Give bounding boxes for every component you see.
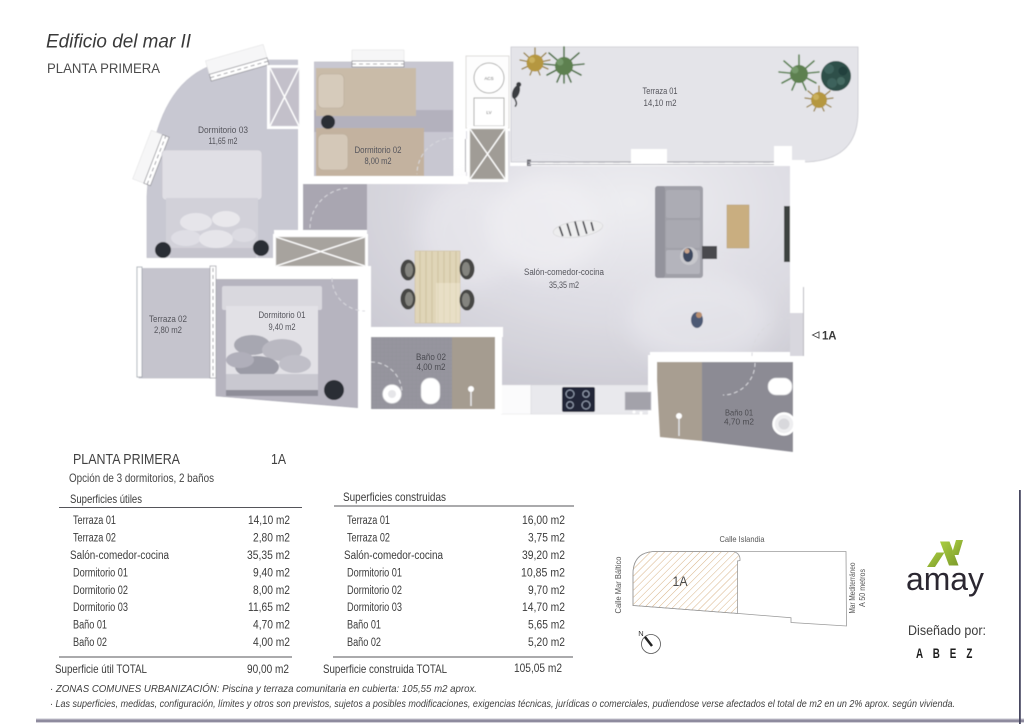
svg-text:PLANTA PRIMERA: PLANTA PRIMERA <box>47 61 160 76</box>
svg-text:PLANTA PRIMERA: PLANTA PRIMERA <box>73 452 180 468</box>
svg-text:Terraza 01: Terraza 01 <box>347 515 390 527</box>
svg-text:Dormitorio 02: Dormitorio 02 <box>355 145 402 155</box>
svg-text:9,40 m2: 9,40 m2 <box>253 568 290 580</box>
svg-text:Terraza 02: Terraza 02 <box>347 533 390 545</box>
svg-text:90,00 m2: 90,00 m2 <box>247 662 289 676</box>
svg-text:Dormitorio 02: Dormitorio 02 <box>73 585 128 597</box>
svg-text:11,65 m2: 11,65 m2 <box>209 136 238 146</box>
svg-text:Superficies útiles: Superficies útiles <box>70 492 142 506</box>
svg-text:Baño 02: Baño 02 <box>347 637 381 649</box>
svg-text:Baño 02: Baño 02 <box>416 352 446 362</box>
svg-text:Terraza 02: Terraza 02 <box>149 314 187 324</box>
svg-text:1A: 1A <box>822 329 837 343</box>
svg-text:Mar Mediterráneo: Mar Mediterráneo <box>848 562 857 613</box>
svg-text:4,00 m2: 4,00 m2 <box>253 637 290 649</box>
svg-text:Dormitorio 03: Dormitorio 03 <box>198 125 248 135</box>
svg-text:9,40 m2: 9,40 m2 <box>269 322 296 332</box>
svg-text:8,00 m2: 8,00 m2 <box>253 585 290 597</box>
svg-text:Dormitorio 01: Dormitorio 01 <box>347 568 402 580</box>
svg-text:5,65 m2: 5,65 m2 <box>528 620 565 632</box>
svg-text:14,10 m2: 14,10 m2 <box>644 98 677 108</box>
svg-text:ACS: ACS <box>484 76 493 81</box>
svg-text:Baño 02: Baño 02 <box>73 637 107 649</box>
svg-text:14,70 m2: 14,70 m2 <box>522 602 565 614</box>
svg-text:A 50 metros: A 50 metros <box>858 569 867 607</box>
svg-text:35,35 m2: 35,35 m2 <box>549 280 579 290</box>
svg-text:105,05 m2: 105,05 m2 <box>514 661 562 675</box>
svg-text:Edificio del mar II: Edificio del mar II <box>46 32 192 53</box>
svg-text:Superficies construidas: Superficies construidas <box>343 490 446 504</box>
svg-text:2,80 m2: 2,80 m2 <box>253 533 290 545</box>
svg-text:Dormitorio 02: Dormitorio 02 <box>347 585 402 597</box>
svg-text:amay: amay <box>906 561 985 597</box>
svg-text:14,10 m2: 14,10 m2 <box>248 515 290 527</box>
svg-text:Terraza 01: Terraza 01 <box>643 86 678 96</box>
svg-text:5,20 m2: 5,20 m2 <box>528 637 565 649</box>
svg-text:Calle Islandia: Calle Islandia <box>720 534 765 544</box>
svg-text:Salón-comedor-cocina: Salón-comedor-cocina <box>70 550 170 562</box>
svg-text:A B E Z: A B E Z <box>916 646 976 661</box>
svg-text:Baño 01: Baño 01 <box>73 620 107 632</box>
svg-text:1A: 1A <box>271 452 286 468</box>
svg-text:Dormitorio 01: Dormitorio 01 <box>73 568 128 580</box>
svg-text:LV: LV <box>486 110 491 115</box>
svg-text:4,00 m2: 4,00 m2 <box>417 362 446 372</box>
svg-text:11,65 m2: 11,65 m2 <box>248 602 290 614</box>
svg-text:8,00 m2: 8,00 m2 <box>365 156 392 166</box>
svg-text:· Las superficies, medidas, co: · Las superficies, medidas, configuració… <box>50 699 955 710</box>
svg-text:· ZONAS COMUNES URBANIZACIÓN:: · ZONAS COMUNES URBANIZACIÓN: Piscina y … <box>50 682 477 695</box>
svg-text:10,85 m2: 10,85 m2 <box>521 568 565 580</box>
svg-text:4,70 m2: 4,70 m2 <box>724 417 754 427</box>
svg-text:Salón-comedor-cocina: Salón-comedor-cocina <box>524 267 604 277</box>
svg-text:Superficie útil TOTAL: Superficie útil TOTAL <box>55 662 147 676</box>
svg-text:39,20 m2: 39,20 m2 <box>522 550 565 562</box>
svg-text:1A: 1A <box>673 574 688 589</box>
svg-text:Calle Mar Báltico: Calle Mar Báltico <box>614 556 623 614</box>
svg-text:Superficie construida TOTAL: Superficie construida TOTAL <box>323 662 447 676</box>
svg-text:Opción de 3 dormitorios, 2 bañ: Opción de 3 dormitorios, 2 baños <box>69 471 214 485</box>
svg-text:N: N <box>638 629 643 638</box>
svg-text:Dormitorio 01: Dormitorio 01 <box>259 310 306 320</box>
svg-text:Dormitorio 03: Dormitorio 03 <box>73 602 128 614</box>
svg-text:Terraza 01: Terraza 01 <box>73 515 116 527</box>
svg-text:Diseñado por:: Diseñado por: <box>908 623 986 639</box>
svg-text:2,80 m2: 2,80 m2 <box>154 325 182 335</box>
svg-text:9,70 m2: 9,70 m2 <box>528 585 565 597</box>
svg-text:Terraza 02: Terraza 02 <box>73 533 116 545</box>
svg-text:3,75 m2: 3,75 m2 <box>528 533 565 545</box>
svg-text:4,70 m2: 4,70 m2 <box>253 620 290 632</box>
svg-text:Baño 01: Baño 01 <box>347 620 381 632</box>
svg-text:16,00 m2: 16,00 m2 <box>522 515 565 527</box>
svg-text:35,35 m2: 35,35 m2 <box>247 550 290 562</box>
svg-text:Dormitorio 03: Dormitorio 03 <box>347 602 402 614</box>
svg-text:Salón-comedor-cocina: Salón-comedor-cocina <box>344 550 444 562</box>
